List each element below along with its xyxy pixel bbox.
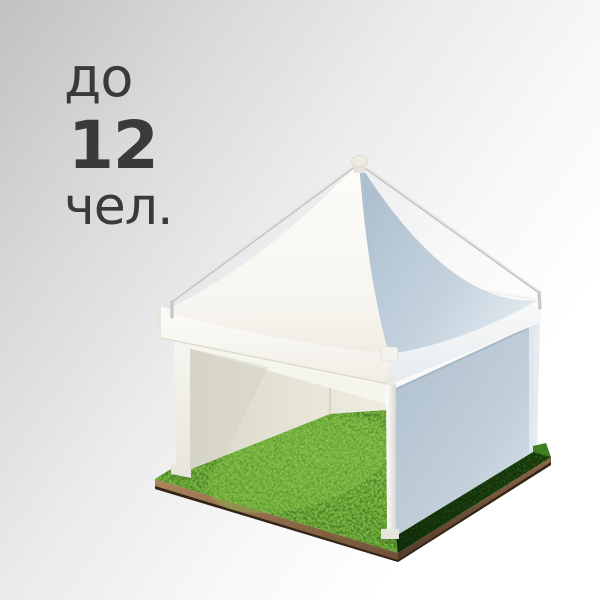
peak-cap	[352, 156, 368, 174]
post-cap	[381, 347, 398, 361]
post-body	[386, 384, 396, 533]
post-bracket	[386, 376, 396, 385]
capacity-label: до 12 чел.	[64, 51, 172, 233]
post-foot	[381, 529, 399, 539]
capacity-prefix: до	[64, 51, 172, 105]
valance-left-cap	[156, 307, 161, 339]
peak-cap-top	[352, 156, 368, 167]
left-wall-edge	[174, 332, 190, 471]
right-corner-post	[529, 321, 540, 453]
capacity-value: 12	[68, 113, 172, 179]
canopy-roof	[166, 163, 538, 354]
capacity-suffix: чел.	[64, 181, 172, 233]
